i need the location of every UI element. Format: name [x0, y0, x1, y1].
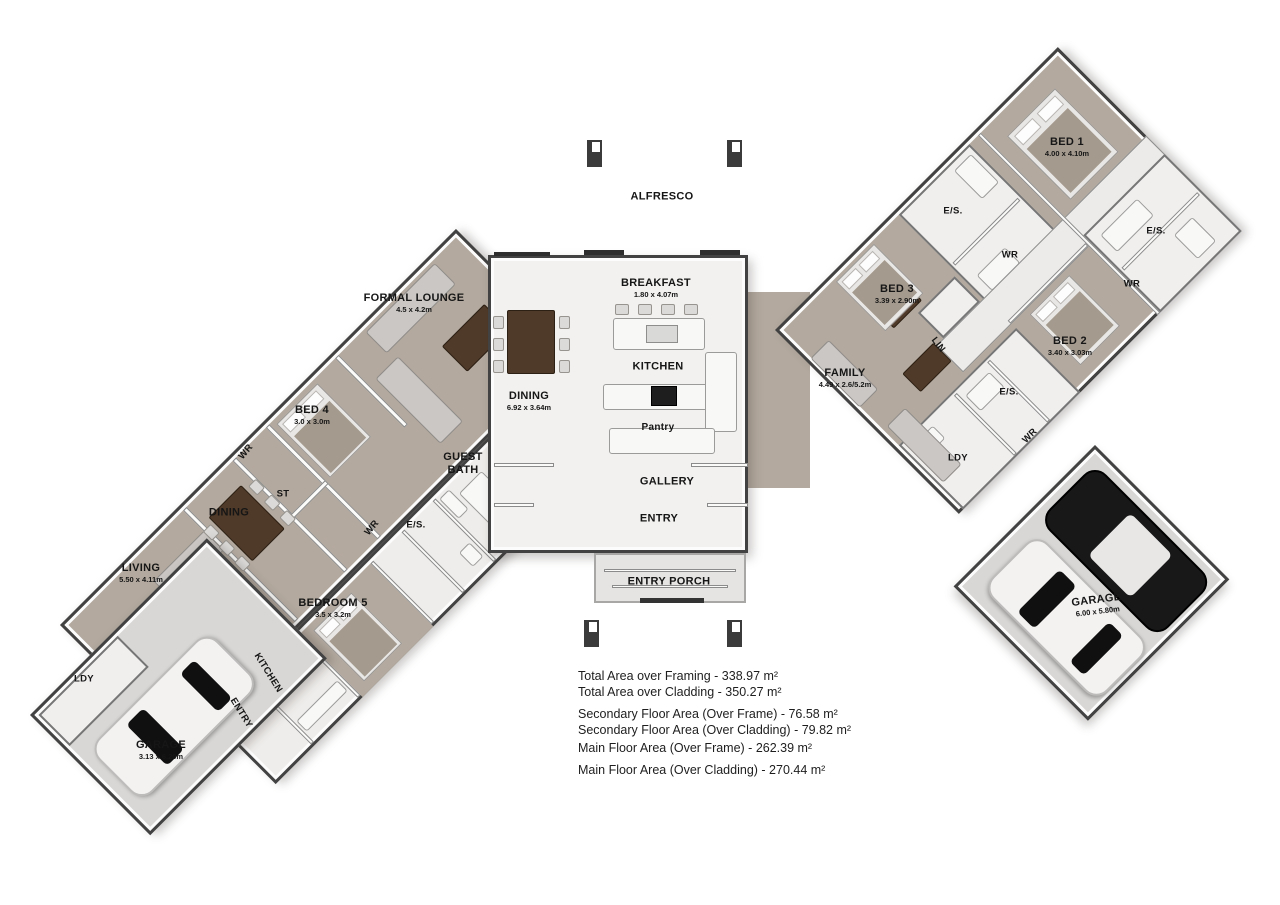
chair [493, 360, 504, 373]
label-dims: 3.0 x 3.0m [294, 417, 330, 426]
label-dims: 4.49 x 2.6/5.2m [819, 380, 872, 389]
wing-right [775, 47, 1242, 514]
area-summary: Total Area over Framing - 338.97 m² Tota… [578, 668, 851, 778]
room-label-entry-porch: ENTRY PORCH [628, 575, 711, 588]
label-text: E/S. [406, 519, 425, 530]
label-dims: 3.39 x 2.90m [875, 296, 919, 305]
garage-right-wing [954, 445, 1230, 721]
label-text: BED 1 [1050, 136, 1084, 148]
window [584, 250, 624, 255]
porch-post [727, 620, 742, 647]
porch-post [584, 620, 599, 647]
chair [493, 316, 504, 329]
room-label-gallery: GALLERY [640, 475, 694, 488]
kitchenette-counter [296, 680, 348, 732]
rear-window [180, 660, 232, 712]
label-text: BED 4 [295, 404, 329, 416]
bed [276, 383, 371, 478]
label-text: BEDROOM 5 [298, 597, 367, 609]
room-label-living: LIVING5.50 x 4.11m [119, 562, 163, 584]
room-label-bedroom5: BEDROOM 53.5 x 3.2m [298, 597, 367, 619]
car-roof [1088, 513, 1173, 598]
label-text: GALLERY [640, 475, 694, 487]
room-label-pantry: Pantry [642, 422, 675, 434]
wall [288, 480, 328, 520]
label-text: BED 3 [880, 283, 914, 295]
room-label-breakfast: BREAKFAST1.80 x 4.07m [621, 277, 691, 299]
stool [661, 304, 675, 315]
label-dims: 4.5 x 4.2m [364, 305, 465, 314]
chair [248, 479, 265, 496]
room-label-wr-bed1: WR [1124, 278, 1140, 289]
room-label-kitchen-main: KITCHEN [633, 360, 684, 373]
stool [684, 304, 698, 315]
room-label-formal-lounge: FORMAL LOUNGE4.5 x 4.2m [364, 292, 465, 314]
label-dims: 1.80 x 4.07m [621, 290, 691, 299]
label-text: WR [1124, 278, 1140, 289]
label-text: DINING [209, 506, 249, 518]
garage-right-floor [954, 445, 1230, 721]
wall [707, 503, 748, 507]
label-text: LIVING [122, 562, 160, 574]
dining-table [507, 310, 555, 374]
label-dims: 3.5 x 3.2m [298, 610, 367, 619]
label-text: ENTRY [640, 512, 678, 524]
room-label-bed1: BED 14.00 x 4.10m [1045, 136, 1089, 158]
chair [559, 316, 570, 329]
wall [402, 530, 466, 594]
label-text: BREAKFAST [621, 277, 691, 289]
area-line: Main Floor Area (Over Frame) - 262.39 m² [578, 740, 851, 756]
sink [646, 325, 678, 343]
area-line: Total Area over Cladding - 350.27 m² [578, 684, 851, 700]
label-text: BED 2 [1053, 335, 1087, 347]
threshold [640, 598, 704, 603]
room-label-guest-bath: GUEST BATH [434, 451, 492, 477]
windshield [1017, 569, 1076, 628]
label-text: ALFRESCO [631, 190, 694, 202]
label-text: Pantry [642, 422, 675, 433]
room-label-st: ST [277, 488, 290, 499]
room-label-ldy-left: LDY [74, 673, 94, 684]
label-text: FAMILY [824, 367, 865, 379]
label-text: LDY [74, 673, 94, 684]
shower [1174, 217, 1216, 259]
room-label-bed3: BED 33.39 x 2.90m [875, 283, 919, 305]
room-label-bed4: BED 43.0 x 3.0m [294, 404, 330, 426]
breakfast-bar [613, 318, 705, 350]
room-label-family: FAMILY4.49 x 2.6/5.2m [819, 367, 872, 389]
shower [954, 154, 999, 199]
chair [559, 360, 570, 373]
room-label-alfresco: ALFRESCO [631, 190, 694, 203]
label-text: E/S. [943, 205, 962, 216]
wall [494, 503, 534, 507]
label-dims: 3.40 x 3.03m [1048, 348, 1092, 357]
label-text: GARAGE [136, 739, 186, 751]
label-dims: 5.50 x 4.11m [119, 575, 163, 584]
room-label-bed2: BED 23.40 x 3.03m [1048, 335, 1092, 357]
cooktop [651, 386, 677, 406]
label-text: E/S. [1146, 225, 1165, 236]
chair [493, 338, 504, 351]
label-dims: 4.00 x 4.10m [1045, 149, 1089, 158]
area-line: Main Floor Area (Over Cladding) - 270.44… [578, 762, 851, 778]
chair [559, 338, 570, 351]
room-label-wr-bed3: WR [1002, 249, 1018, 260]
label-text: E/S. [999, 386, 1018, 397]
room-label-es-bed1: E/S. [1146, 225, 1165, 236]
room-label-entry-main: ENTRY [640, 512, 678, 525]
label-dims: 6.92 x 3.64m [507, 403, 551, 412]
label-text: ENTRY PORCH [628, 575, 711, 587]
room-label-dining-left: DINING [209, 506, 249, 519]
stool [615, 304, 629, 315]
label-text: LDY [948, 452, 968, 463]
label-dims: 3.13 x 6.20m [136, 752, 186, 761]
label-text: GUEST BATH [443, 451, 482, 476]
room-label-es-guest: E/S. [406, 519, 425, 530]
alfresco-post [587, 140, 602, 167]
room-label-garage-left: GARAGE3.13 x 6.20m [136, 739, 186, 761]
window [700, 250, 740, 255]
label-text: KITCHEN [633, 360, 684, 372]
kitchen-counter [705, 352, 737, 432]
label-text: DINING [509, 390, 549, 402]
stool [638, 304, 652, 315]
wall [691, 463, 748, 467]
room-label-es-bed3: E/S. [943, 205, 962, 216]
area-line: Secondary Floor Area (Over Frame) - 76.5… [578, 706, 851, 722]
label-text: FORMAL LOUNGE [364, 292, 465, 304]
room-label-ldy-right: LDY [948, 452, 968, 463]
window [494, 252, 550, 256]
room-label-es-bed2: E/S. [999, 386, 1018, 397]
step-edge [604, 569, 736, 572]
rear-window [1070, 622, 1124, 676]
area-line: Secondary Floor Area (Over Cladding) - 7… [578, 722, 851, 738]
area-line: Total Area over Framing - 338.97 m² [578, 668, 851, 684]
room-label-dining-main: DINING6.92 x 3.64m [507, 390, 551, 412]
right-wing-base [775, 47, 1242, 514]
label-text: WR [1002, 249, 1018, 260]
floor-plan: ALFRESCO BREAKFAST1.80 x 4.07m KITCHEN D… [0, 0, 1280, 905]
label-text: ST [277, 488, 290, 499]
sofa [375, 356, 463, 444]
alfresco-post [727, 140, 742, 167]
wall [494, 463, 554, 467]
